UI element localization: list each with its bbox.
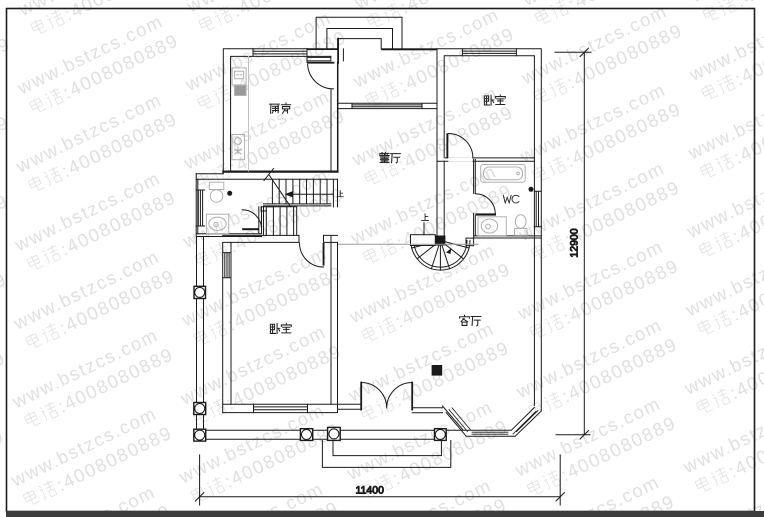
svg-text:12900: 12900 [569, 228, 581, 257]
svg-text:11400: 11400 [356, 485, 385, 497]
